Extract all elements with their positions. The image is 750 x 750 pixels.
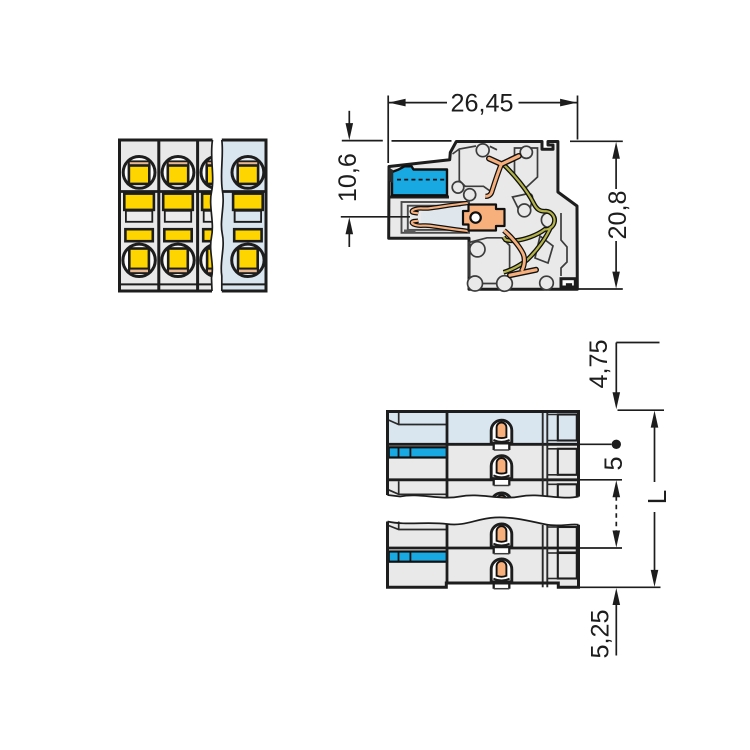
svg-text:4,75: 4,75 [585,339,613,388]
svg-text:L: L [642,490,672,504]
svg-text:5,25: 5,25 [587,609,615,658]
svg-text:26,45: 26,45 [450,89,513,117]
svg-text:5: 5 [600,456,628,470]
svg-text:20,8: 20,8 [604,190,632,239]
svg-text:10,6: 10,6 [334,153,362,202]
